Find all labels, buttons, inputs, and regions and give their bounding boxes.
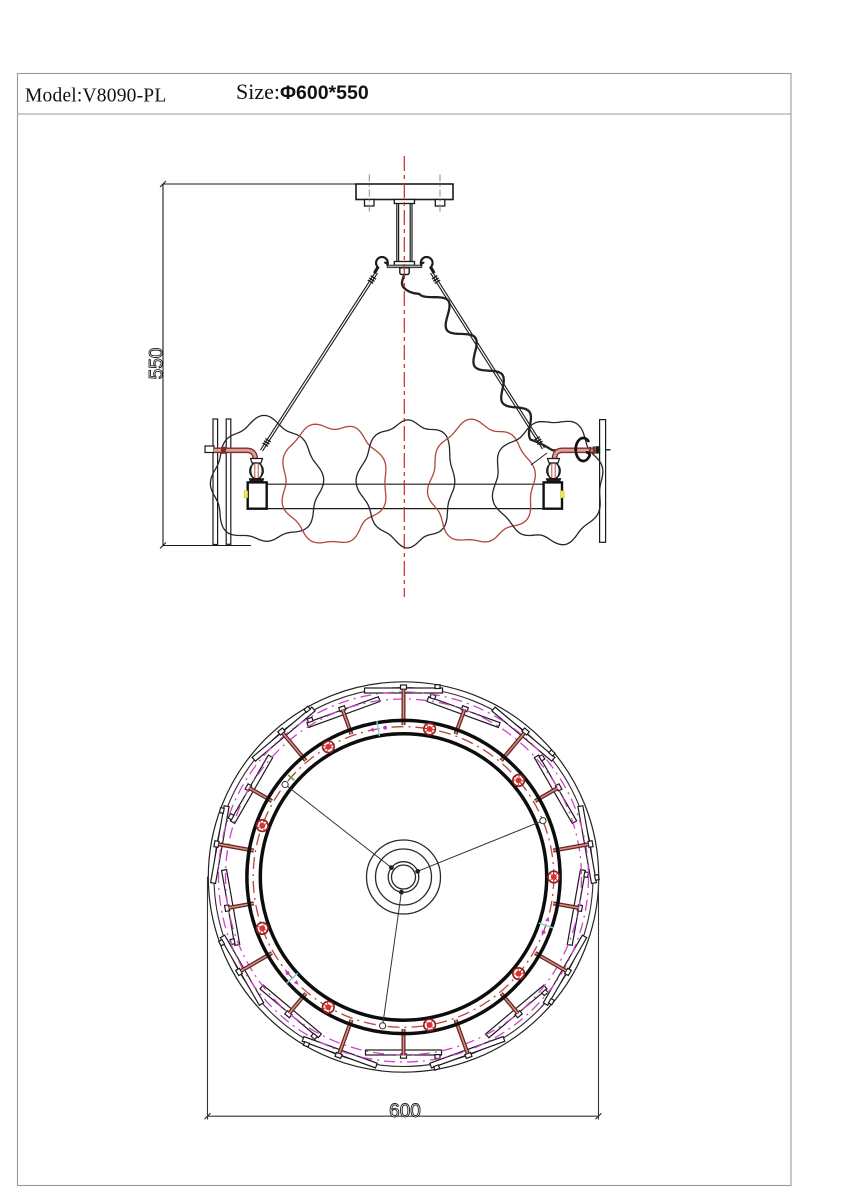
svg-text:Φ600*550: Φ600*550 bbox=[280, 82, 369, 104]
svg-text:600: 600 bbox=[389, 1101, 421, 1122]
svg-text:550: 550 bbox=[147, 348, 168, 380]
svg-text:Size:: Size: bbox=[236, 79, 280, 104]
svg-text:Model:V8090-PL: Model:V8090-PL bbox=[25, 86, 166, 107]
